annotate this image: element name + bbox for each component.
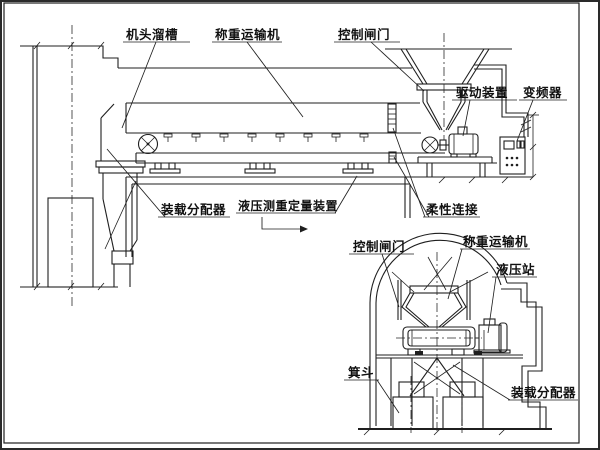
figure-canvas: 机头溜槽 称重运输机 控制闸门 驱动装置 变频器 装载分配器 [0, 0, 600, 450]
flexible-connection-label: 柔性连接 [425, 202, 478, 217]
drive-unit-label: 驱动装置 [456, 85, 508, 100]
skip-bucket-label: 箕斗 [347, 365, 374, 380]
inset-loading-distributor-label: 装载分配器 [510, 385, 576, 400]
inset-weighing-conveyor-label: 称重运输机 [463, 234, 528, 249]
hydraulic-weighing-device-label: 液压测重定量装置 [238, 198, 338, 213]
weighing-conveyor-label: 称重运输机 [215, 27, 280, 42]
loading-distributor-label: 装载分配器 [160, 202, 226, 217]
frequency-converter-label: 变频器 [523, 85, 562, 100]
hydraulic-station-label: 液压站 [496, 262, 535, 277]
inset-control-gate-label: 控制闸门 [353, 239, 405, 254]
engineering-diagram: 机头溜槽 称重运输机 控制闸门 驱动装置 变频器 装载分配器 [0, 0, 600, 450]
head-chute-label: 机头溜槽 [126, 27, 178, 42]
control-gate-label: 控制闸门 [338, 27, 390, 42]
